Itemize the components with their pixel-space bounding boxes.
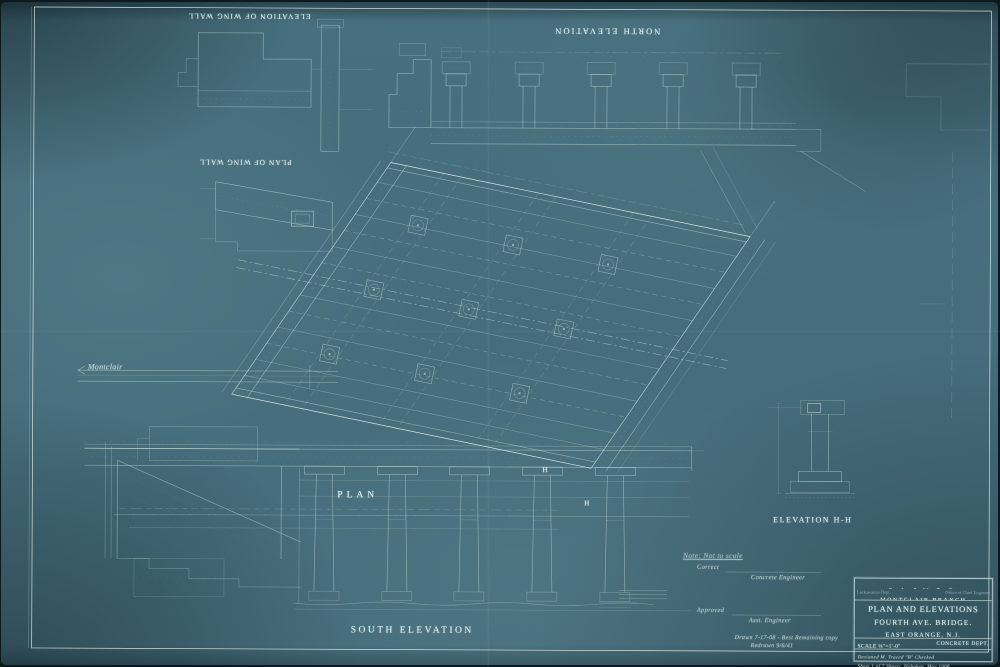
north-elevation-label: NORTH ELEVATION xyxy=(553,26,660,36)
south-elevation-piers xyxy=(304,466,636,601)
bridge-plan-drawing xyxy=(211,97,784,495)
title-block-sheet-row: Sheet 1 of 7 Sheets, Hoboken, May 1908 xyxy=(855,659,992,667)
dimension-chains xyxy=(114,508,689,530)
border-frame xyxy=(29,7,992,652)
title-block: D. L. & W. R. R. Lackawanna Dept. MONTCL… xyxy=(854,578,993,663)
section-marker-h-bottom: H xyxy=(584,499,590,507)
drawing-title-line1: PLAN AND ELEVATIONS xyxy=(868,604,978,614)
drawing-title-line2: FOURTH AVE. BRIDGE. xyxy=(874,618,972,627)
plan-label: PLAN xyxy=(337,490,378,500)
plan-of-wing-wall-label: PLAN OF WING WALL xyxy=(199,158,292,167)
approved-signature-label: Approved xyxy=(697,607,724,614)
title-block-location-row: EAST ORANGE, N.J. xyxy=(855,627,992,639)
blueprint-scan: ELEVATION OF WING WALL NORTH ELEVATION P… xyxy=(0,0,1000,667)
south-elevation-label: SOUTH ELEVATION xyxy=(351,625,474,636)
pencil-note-redrawn: Redrawn 9/6/41 xyxy=(751,643,794,649)
montclair-annotation: Montclair xyxy=(88,362,123,371)
right-edge-details xyxy=(905,64,990,422)
title-block-railroad-row: D. L. & W. R. R. xyxy=(855,579,992,590)
elevation-of-wing-wall-label: ELEVATION OF WING WALL xyxy=(187,12,310,22)
south-elevation-drawing xyxy=(84,426,705,611)
elevation-hh-drawing xyxy=(767,400,855,497)
office-left-text: Lackawanna Dept. xyxy=(857,590,891,595)
note-annotation: Note: Not to scale xyxy=(683,551,743,560)
bar-schedule-detail xyxy=(599,588,667,607)
elevation-hh-label: ELEVATION H-H xyxy=(773,515,852,524)
concrete-engineer-label: Concrete Engineer xyxy=(751,574,805,581)
correct-signature-label: Correct xyxy=(697,564,719,571)
blueprint-linework xyxy=(0,0,1000,667)
title-block-scale-row: SCALE ⅛"=1'-0" CONCRETE DEPT. xyxy=(855,638,992,651)
section-marker-h-top: H xyxy=(542,466,548,474)
pencil-note-drawn: Drawn 7-17-08 - Best Remaining copy xyxy=(735,635,838,641)
asst-engineer-label: Asst. Engineer xyxy=(749,617,791,624)
office-right-text: Office of Chief Engineer xyxy=(945,590,990,595)
north-elevation-piers xyxy=(442,62,760,129)
title-block-title2-row: FOURTH AVE. BRIDGE. xyxy=(855,615,992,628)
north-elevation-drawing xyxy=(388,44,866,234)
drawing-sheet: ELEVATION OF WING WALL NORTH ELEVATION P… xyxy=(0,0,1000,667)
wing-wall-elevation-drawing xyxy=(178,19,374,152)
wing-wall-plan-drawing xyxy=(200,182,332,252)
title-block-title1-row: PLAN AND ELEVATIONS xyxy=(855,600,992,616)
department-name: CONCRETE DEPT. xyxy=(937,639,989,649)
title-block-branch-row: Lackawanna Dept. MONTCLAIR BRANCH Office… xyxy=(855,589,992,601)
